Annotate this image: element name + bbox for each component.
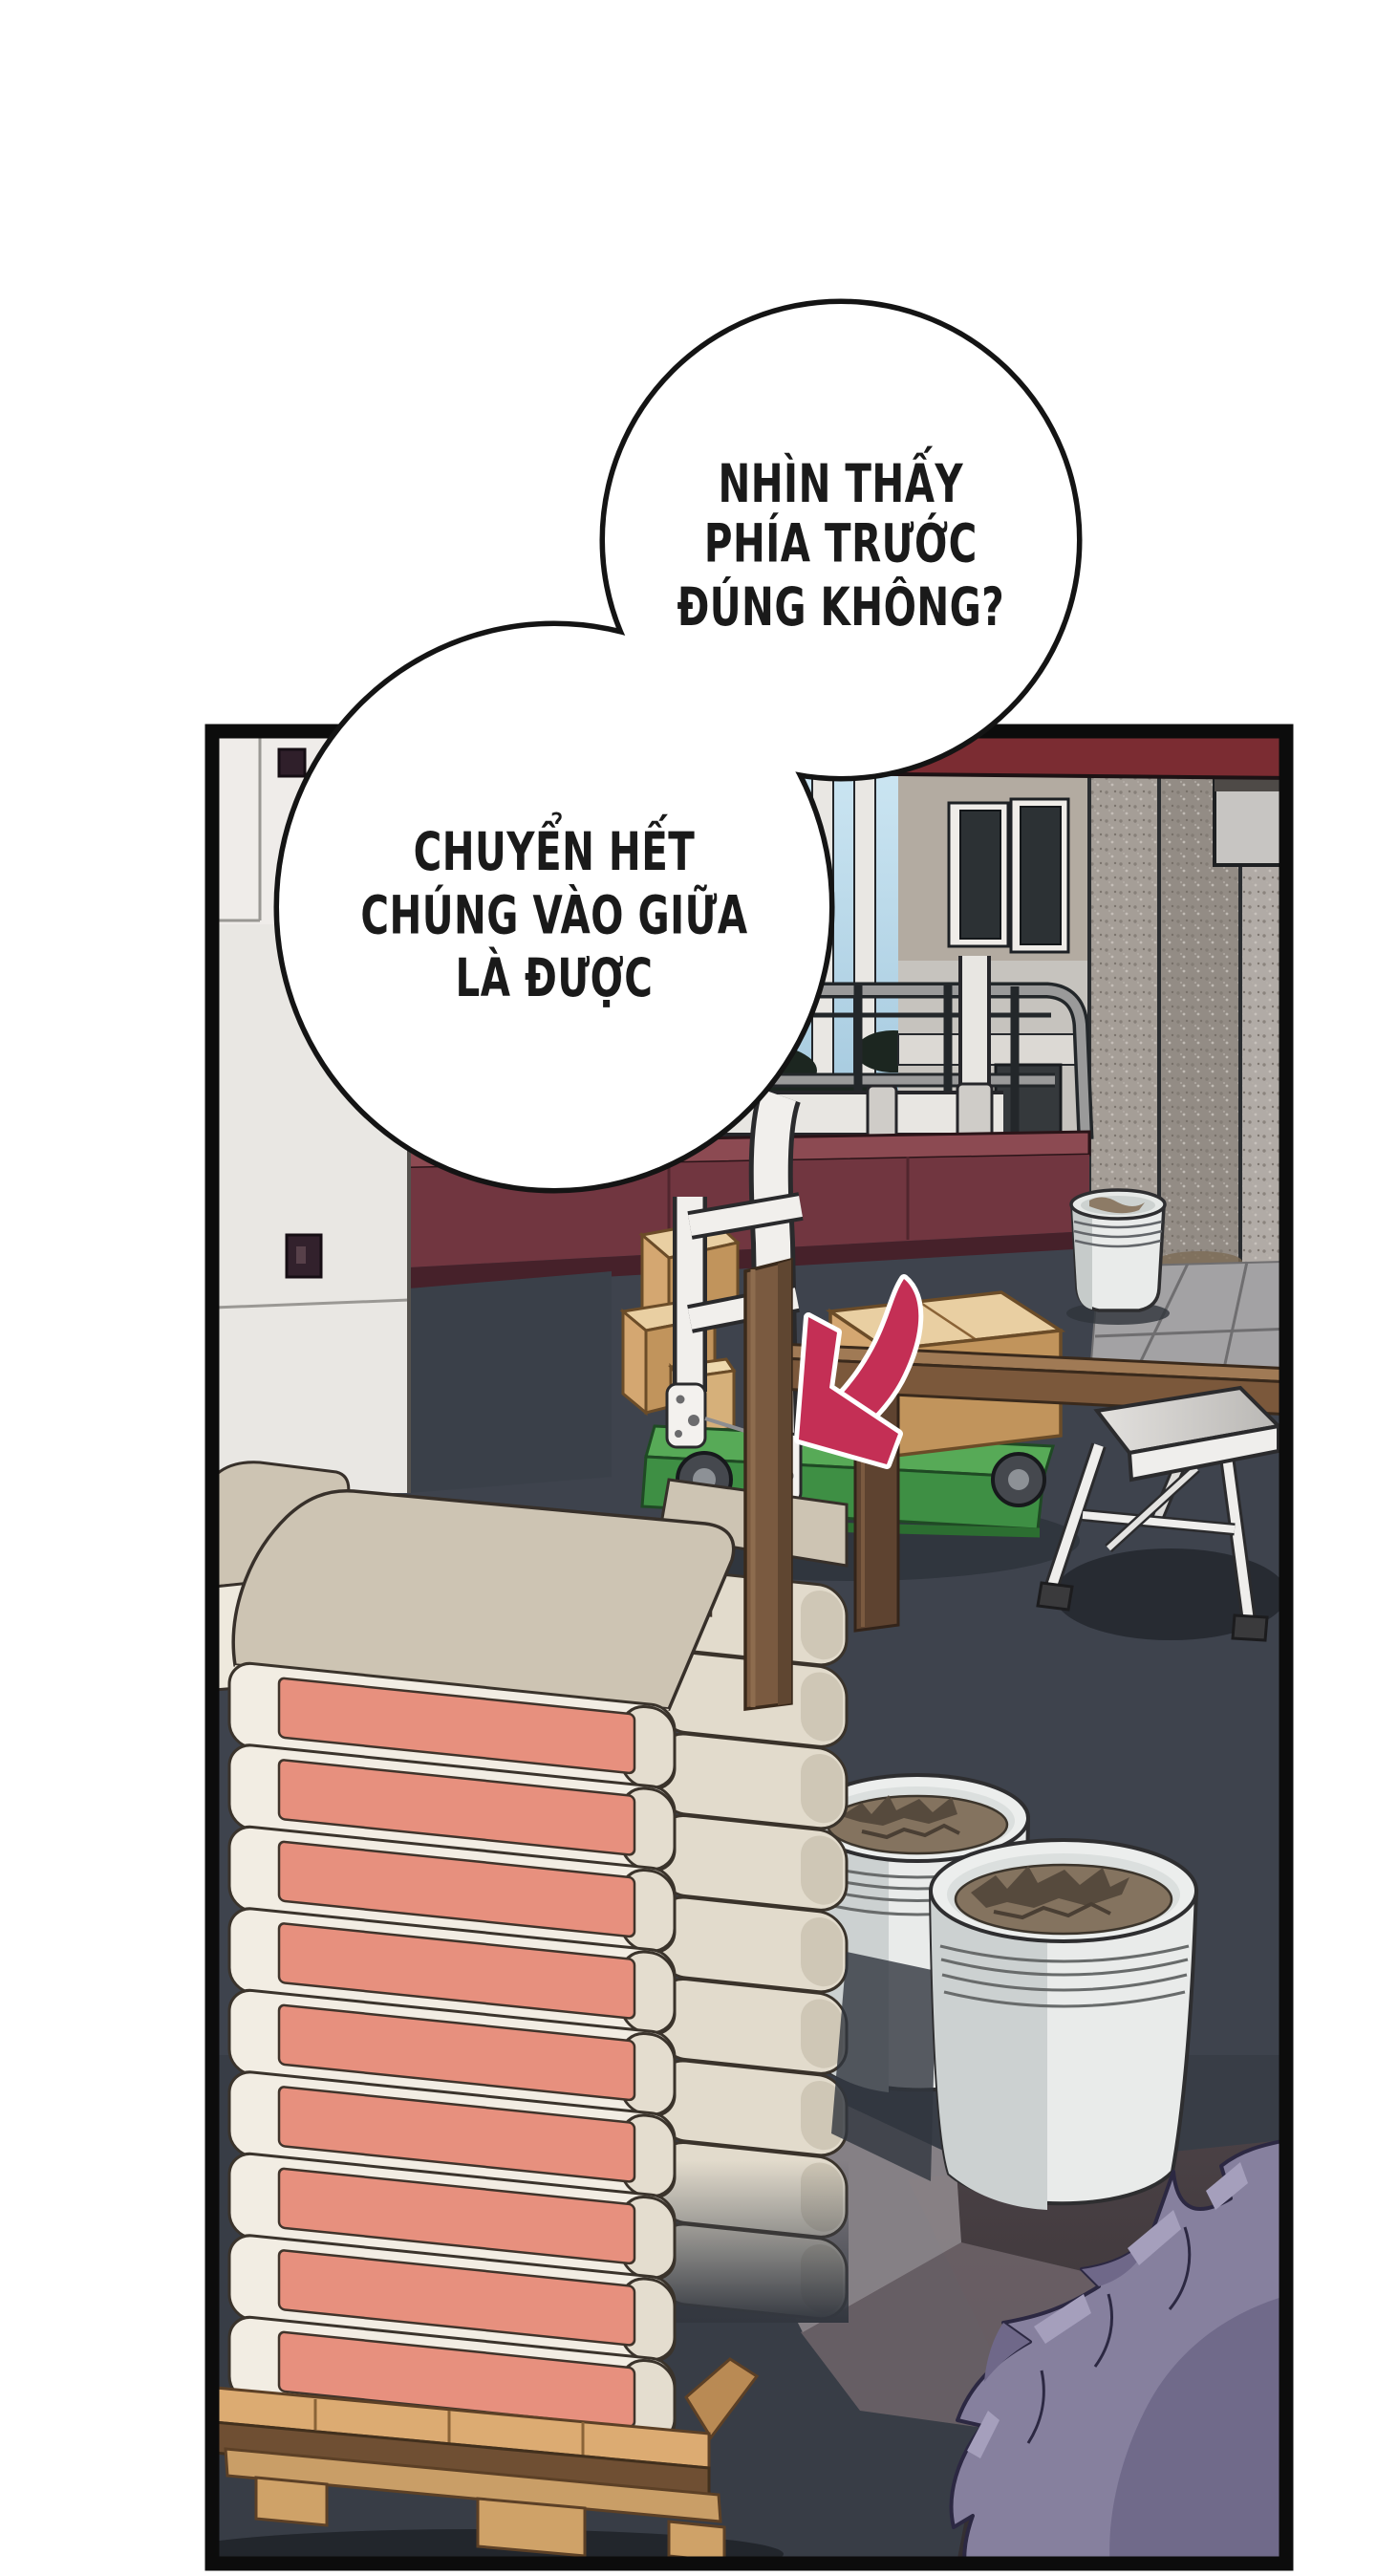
bubble-top-line-2: PHÍA TRƯỚC — [704, 512, 978, 574]
stool-foot — [1038, 1583, 1072, 1610]
bag-end-cap-shade — [801, 1833, 843, 1907]
bag-end-cap-shade — [801, 1916, 843, 1989]
bag-end-cap-shade — [801, 1670, 843, 1743]
wall-switch — [279, 749, 305, 776]
bubble-bottom-line-3: LÀ ĐƯỢC — [456, 947, 654, 1009]
bag-end-cap-shade — [801, 1997, 843, 2070]
pallet-foot — [478, 2499, 585, 2556]
stool-foot — [1233, 1615, 1267, 1640]
panel-artwork: NHÌN THẤY PHÍA TRƯỚC ĐÚNG KHÔNG? CHUYỂN … — [0, 0, 1376, 2576]
bubble-top-line-3: ĐÚNG KHÔNG? — [677, 576, 1004, 639]
window — [1011, 799, 1068, 952]
cart-wheel — [993, 1454, 1044, 1505]
bag-end-cap-shade — [801, 1589, 843, 1662]
wood-post — [745, 1260, 791, 1709]
vent-box — [1215, 770, 1285, 865]
window — [949, 803, 1008, 946]
comic-page: NHÌN THẤY PHÍA TRƯỚC ĐÚNG KHÔNG? CHUYỂN … — [0, 0, 1376, 2576]
bubble-top-line-1: NHÌN THẤY — [719, 446, 964, 515]
bag-stack-main — [229, 1491, 734, 2445]
bag-end-cap-shade — [801, 1752, 843, 1826]
balcony-band — [898, 1034, 1089, 1065]
bucket-front — [931, 1840, 1196, 2210]
slate-wall — [409, 1271, 612, 1493]
bubble-top-text: NHÌN THẤY PHÍA TRƯỚC ĐÚNG KHÔNG? — [677, 446, 1004, 639]
bubble-bottom-line-1: CHUYỂN HẾT — [414, 812, 696, 883]
pipe-clamp — [868, 1086, 896, 1141]
pallet-foot — [256, 2478, 327, 2525]
pallet-foot — [669, 2522, 724, 2562]
bubble-bottom-line-2: CHÚNG VÀO GIỮA — [360, 884, 747, 946]
